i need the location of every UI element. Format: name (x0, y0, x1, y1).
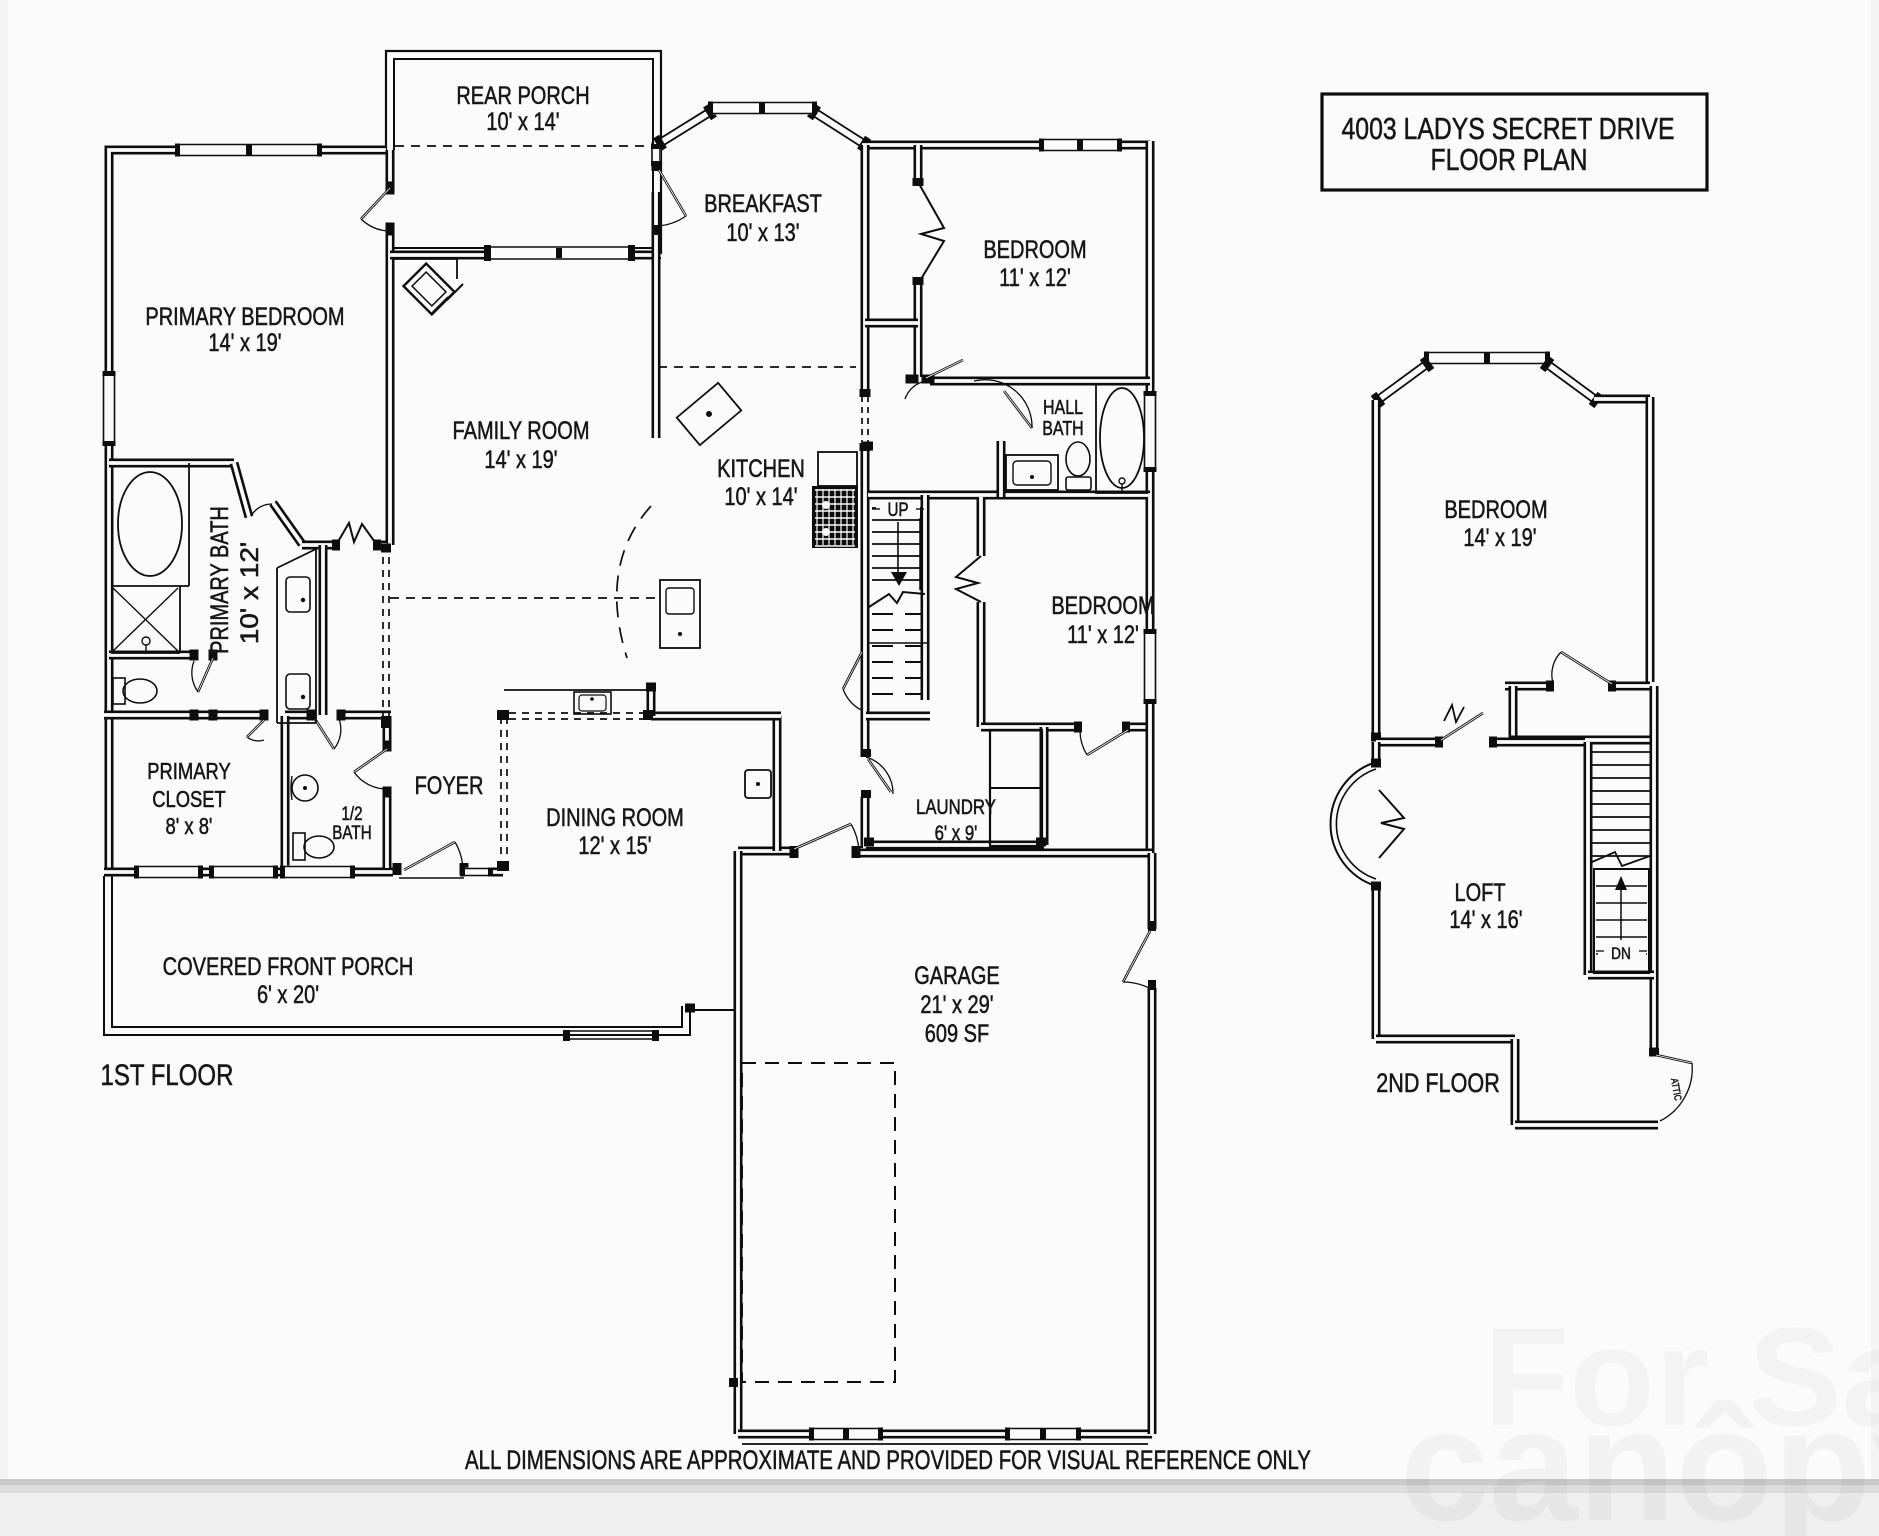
svg-text:FAMILY ROOM: FAMILY ROOM (453, 417, 590, 445)
svg-text:DINING ROOM: DINING ROOM (546, 804, 684, 832)
svg-text:14' x 19': 14' x 19' (1463, 524, 1536, 552)
svg-text:BATH: BATH (1042, 417, 1083, 439)
svg-text:CLOSET: CLOSET (152, 787, 226, 812)
svg-text:LAUNDRY: LAUNDRY (916, 796, 996, 819)
svg-text:11' x 12': 11' x 12' (1067, 621, 1139, 649)
svg-text:REAR PORCH: REAR PORCH (456, 82, 589, 110)
svg-text:1ST FLOOR: 1ST FLOOR (101, 1057, 234, 1091)
svg-text:BEDROOM: BEDROOM (1444, 496, 1547, 524)
svg-text:609 SF: 609 SF (925, 1020, 989, 1048)
svg-text:21' x 29': 21' x 29' (920, 991, 993, 1019)
svg-text:PRIMARY BEDROOM: PRIMARY BEDROOM (145, 303, 344, 331)
svg-text:14' x 19': 14' x 19' (208, 329, 281, 357)
svg-text:14' x 16': 14' x 16' (1449, 906, 1522, 934)
svg-text:KITCHEN: KITCHEN (717, 455, 805, 483)
svg-text:BATH: BATH (332, 821, 371, 843)
svg-text:8' x 8': 8' x 8' (166, 814, 213, 839)
svg-text:6' x 20': 6' x 20' (257, 981, 319, 1009)
svg-text:4003 LADYS SECRET DRIVE: 4003 LADYS SECRET DRIVE (1341, 111, 1674, 145)
svg-text:2ND FLOOR: 2ND FLOOR (1376, 1069, 1500, 1099)
svg-text:HALL: HALL (1043, 396, 1083, 418)
svg-text:PRIMARY BATH: PRIMARY BATH (206, 506, 234, 654)
svg-text:ALL DIMENSIONS ARE APPROXIMATE: ALL DIMENSIONS ARE APPROXIMATE AND PROVI… (465, 1445, 1311, 1475)
svg-text:canôpy: canôpy (1400, 1375, 1879, 1536)
svg-text:DN: DN (1611, 945, 1631, 964)
svg-text:BEDROOM: BEDROOM (983, 236, 1086, 264)
svg-text:BEDROOM: BEDROOM (1051, 592, 1154, 620)
svg-text:FOYER: FOYER (415, 772, 484, 800)
svg-text:BREAKFAST: BREAKFAST (704, 190, 822, 218)
svg-text:11' x 12': 11' x 12' (999, 264, 1071, 292)
svg-text:6' x 9': 6' x 9' (935, 822, 978, 845)
svg-text:12' x 15': 12' x 15' (578, 832, 651, 860)
svg-text:FLOOR PLAN: FLOOR PLAN (1430, 142, 1587, 176)
svg-text:14' x 19': 14' x 19' (484, 446, 557, 474)
svg-text:PRIMARY: PRIMARY (147, 759, 231, 784)
svg-text:UP: UP (887, 498, 908, 520)
svg-text:GARAGE: GARAGE (914, 962, 1000, 990)
svg-text:10' x 12': 10' x 12' (235, 542, 263, 645)
svg-text:10' x 14': 10' x 14' (486, 108, 559, 136)
svg-text:10' x 14': 10' x 14' (724, 483, 797, 511)
svg-text:COVERED FRONT PORCH: COVERED FRONT PORCH (163, 953, 414, 981)
svg-text:LOFT: LOFT (1454, 879, 1505, 907)
svg-text:10' x 13': 10' x 13' (726, 219, 799, 247)
